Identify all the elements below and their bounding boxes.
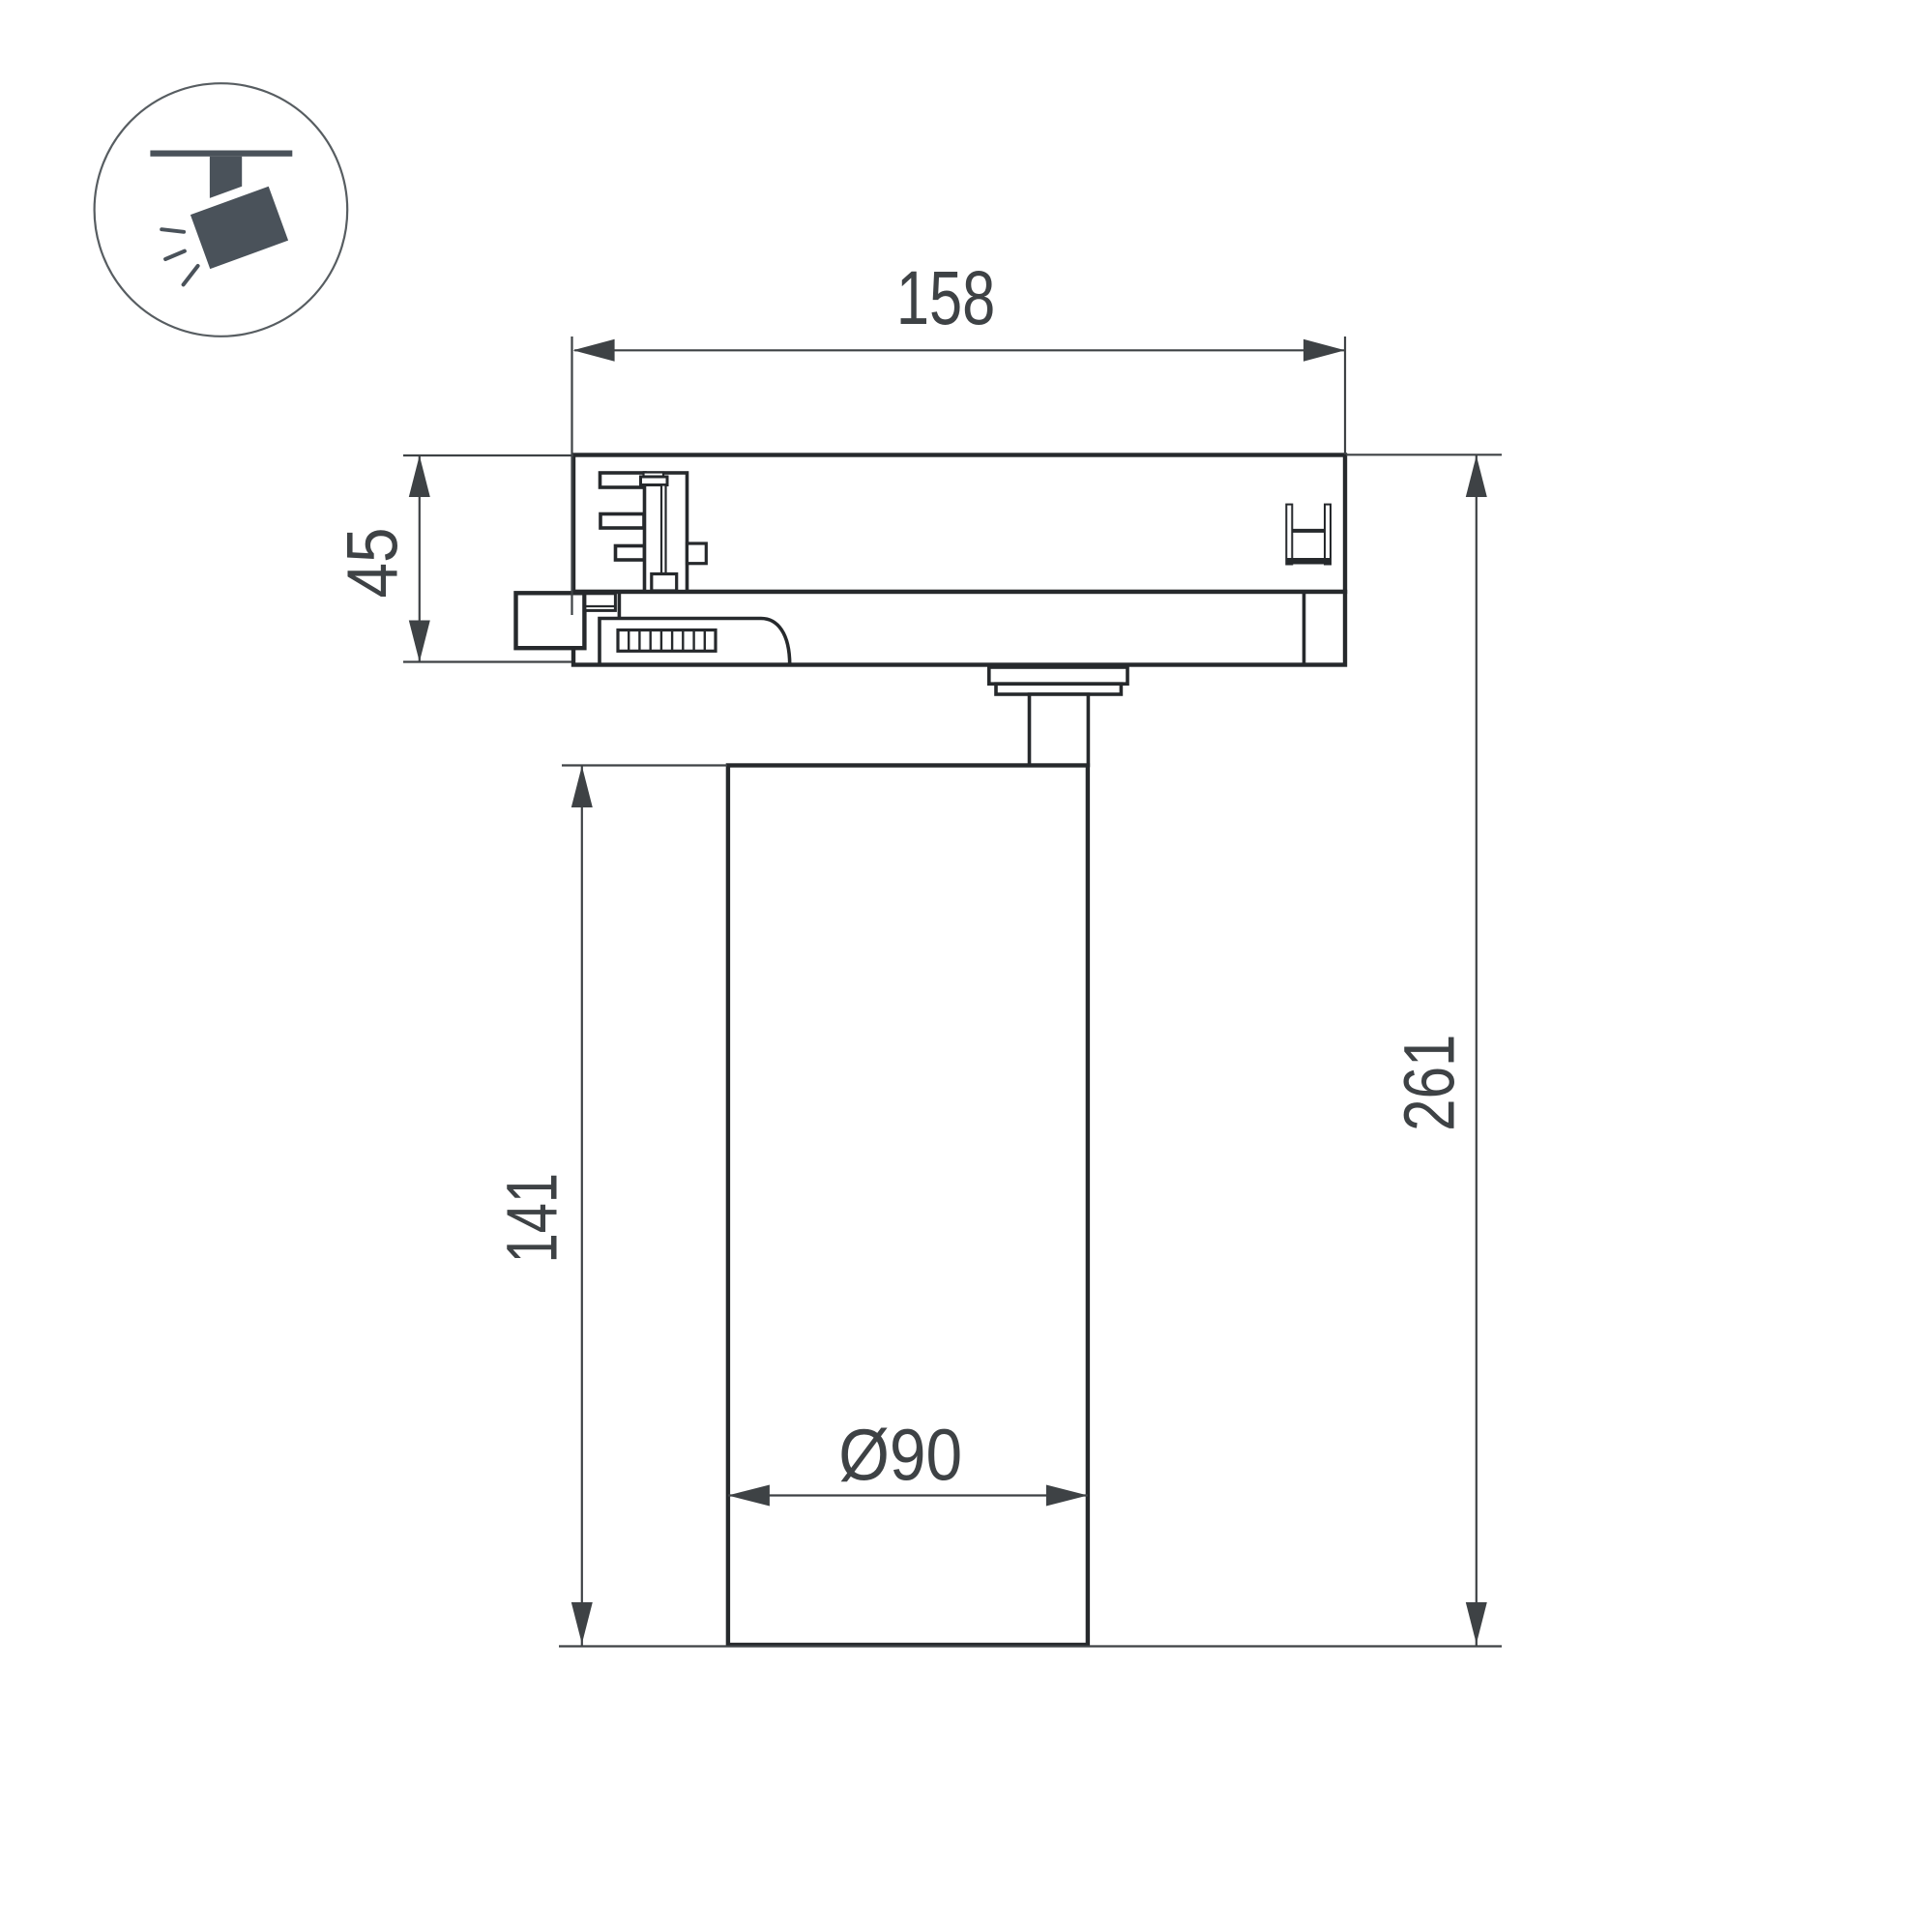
svg-text:158: 158 xyxy=(896,254,995,340)
svg-text:141: 141 xyxy=(492,1173,572,1263)
svg-text:45: 45 xyxy=(332,527,412,598)
svg-text:261: 261 xyxy=(1390,1035,1470,1131)
svg-text:Ø90: Ø90 xyxy=(838,1414,962,1495)
